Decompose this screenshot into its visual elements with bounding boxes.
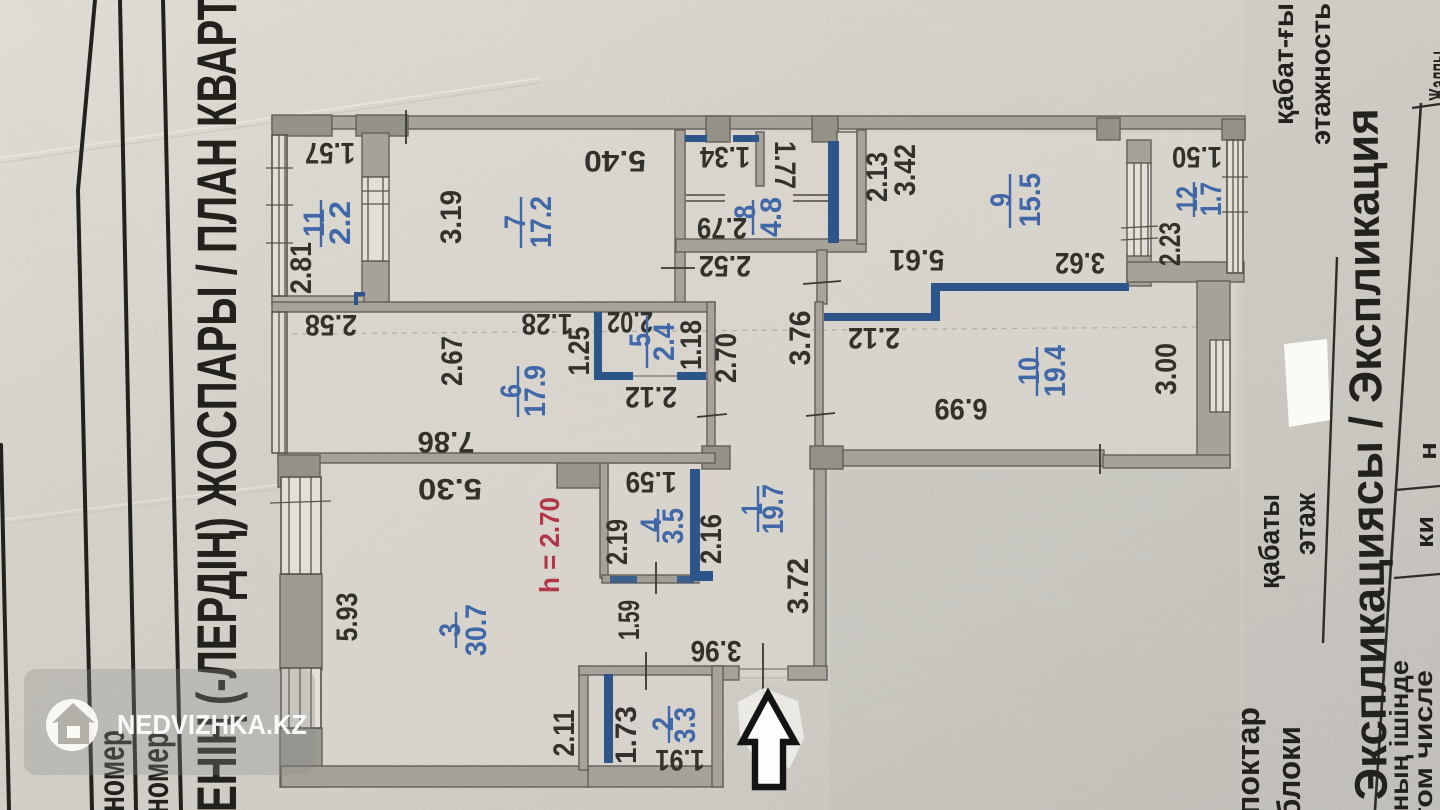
svg-text:3.42: 3.42 bbox=[889, 144, 922, 196]
svg-text:2.67: 2.67 bbox=[436, 336, 469, 386]
svg-text:этажность: этажность bbox=[1305, 3, 1336, 145]
svg-text:1.50: 1.50 bbox=[1172, 140, 1222, 173]
svg-text:Жалпы: Жалпы bbox=[1423, 51, 1440, 102]
svg-text:2.12: 2.12 bbox=[625, 380, 677, 413]
svg-text:7.86: 7.86 bbox=[418, 425, 475, 458]
svg-text:3.00: 3.00 bbox=[1150, 343, 1183, 395]
svg-text:н: н bbox=[1415, 442, 1440, 460]
svg-text:4.8: 4.8 bbox=[755, 197, 788, 237]
svg-text:h = 2.70: h = 2.70 bbox=[534, 497, 565, 593]
svg-text:1.91: 1.91 bbox=[656, 743, 705, 776]
svg-text:1.59: 1.59 bbox=[626, 465, 677, 498]
svg-text:1.25: 1.25 bbox=[563, 327, 596, 376]
svg-text:2.2: 2.2 bbox=[324, 201, 357, 245]
svg-text:1.57: 1.57 bbox=[305, 136, 355, 169]
svg-text:15.5: 15.5 bbox=[1014, 173, 1047, 227]
svg-text:қабат-ғы: қабат-ғы bbox=[1268, 3, 1299, 125]
svg-text:19.4: 19.4 bbox=[1039, 345, 1072, 397]
svg-text:ки: ки bbox=[1412, 516, 1439, 548]
svg-text:том числе: том числе bbox=[1408, 670, 1438, 810]
svg-text:қабаты: қабаты bbox=[1254, 494, 1286, 589]
svg-text:17.9: 17.9 bbox=[519, 365, 552, 417]
svg-text:3.96: 3.96 bbox=[691, 634, 742, 667]
svg-text:5.40: 5.40 bbox=[584, 144, 646, 177]
svg-text:2.23: 2.23 bbox=[1154, 222, 1187, 266]
svg-text:1.73: 1.73 bbox=[610, 706, 643, 764]
svg-text:2.52: 2.52 bbox=[699, 249, 751, 282]
svg-text:19.7: 19.7 bbox=[757, 484, 790, 534]
svg-text:2.70: 2.70 bbox=[710, 333, 743, 383]
svg-text:5.30: 5.30 bbox=[418, 472, 482, 505]
svg-text:1.34: 1.34 bbox=[700, 140, 750, 173]
svg-text:6.99: 6.99 bbox=[935, 392, 988, 425]
svg-text:17.2: 17.2 bbox=[525, 196, 558, 248]
svg-text:3.3: 3.3 bbox=[669, 707, 702, 743]
svg-text:NEDVIZHKA.KZ: NEDVIZHKA.KZ bbox=[117, 709, 307, 740]
svg-text:5.61: 5.61 bbox=[890, 243, 945, 276]
svg-text:1.59: 1.59 bbox=[613, 600, 646, 640]
svg-text:30.7: 30.7 bbox=[460, 604, 493, 656]
svg-text:3.62: 3.62 bbox=[1055, 246, 1105, 279]
svg-text:2.12: 2.12 bbox=[848, 321, 900, 354]
svg-text:2.58: 2.58 bbox=[305, 308, 357, 341]
svg-text:2.81: 2.81 bbox=[285, 242, 318, 294]
svg-text:этаж: этаж bbox=[1290, 493, 1322, 555]
svg-text:2.4: 2.4 bbox=[648, 323, 681, 361]
svg-text:3.72: 3.72 bbox=[782, 558, 815, 614]
svg-text:блоки: блоки bbox=[1271, 726, 1307, 810]
svg-text:2.19: 2.19 bbox=[601, 519, 634, 565]
svg-text:1.77: 1.77 bbox=[768, 141, 801, 189]
svg-text:3.76: 3.76 bbox=[784, 311, 817, 366]
svg-text:3.19: 3.19 bbox=[435, 190, 468, 244]
svg-text:1.7: 1.7 bbox=[1195, 182, 1228, 216]
svg-text:2.11: 2.11 bbox=[548, 710, 581, 757]
svg-text:3.5: 3.5 bbox=[657, 508, 690, 544]
svg-text:поктар: поктар bbox=[1230, 707, 1266, 810]
svg-text:2.16: 2.16 bbox=[695, 514, 728, 564]
svg-text:5.93: 5.93 bbox=[331, 593, 364, 642]
